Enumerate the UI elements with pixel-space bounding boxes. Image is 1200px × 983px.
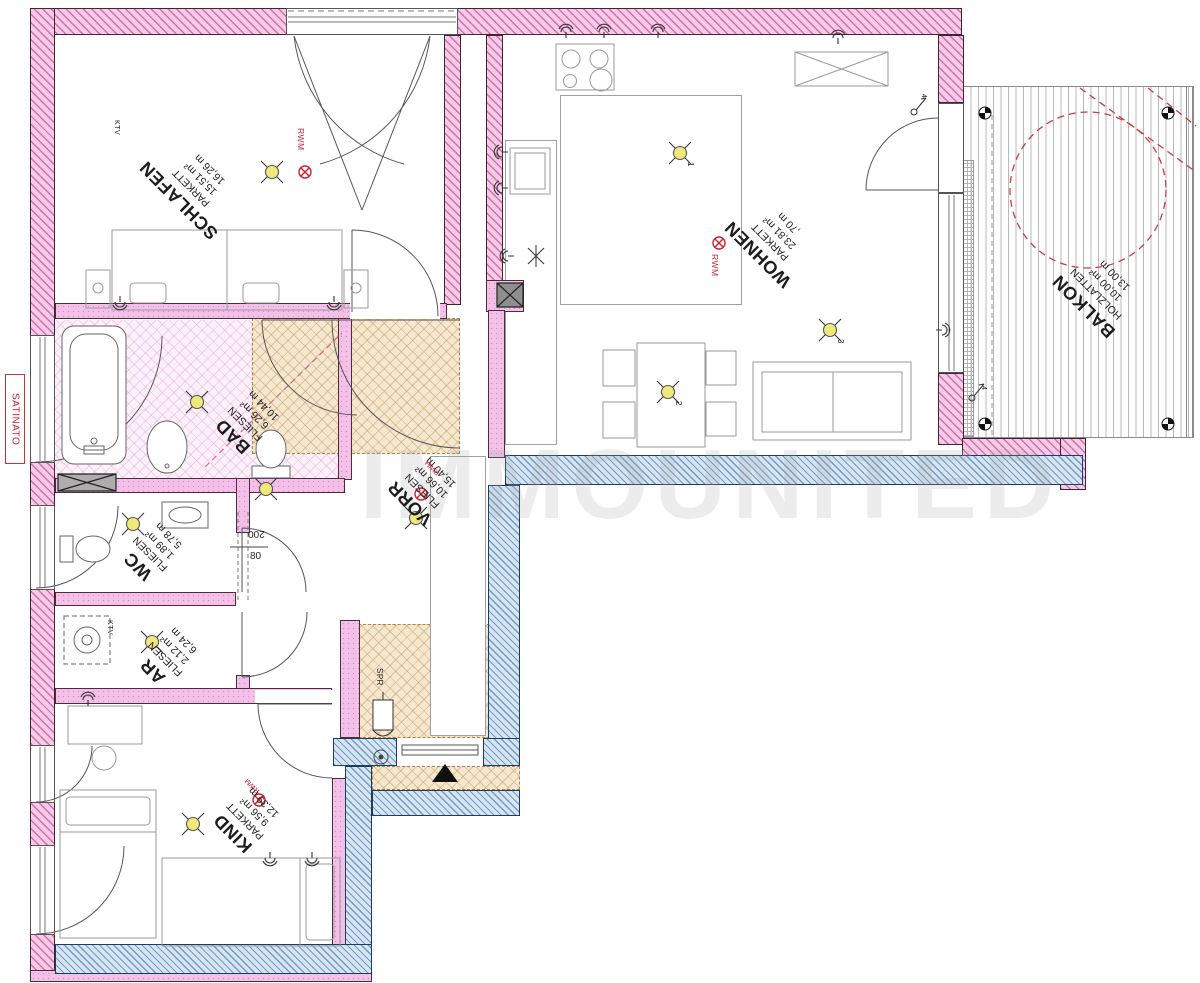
spr-label: SPR (375, 668, 384, 686)
rwm-label: RWM (296, 128, 306, 151)
light-number: 1 (686, 162, 695, 167)
socket-icon (597, 24, 611, 38)
stove-connection-icon (528, 245, 544, 267)
light-icon (669, 142, 691, 164)
dim-height-label: 200 (248, 528, 265, 539)
floor-plan: IMMOUNITED (0, 0, 1200, 983)
ktv-label: KTV (113, 120, 120, 135)
satinato-label-box: SATINATO (5, 374, 25, 464)
light-icon (819, 319, 841, 341)
dim-width-label: 80 (250, 551, 261, 562)
socket-icon (81, 692, 95, 706)
sofa (753, 362, 911, 440)
switch-icon (911, 98, 926, 115)
kind-chair (92, 746, 116, 770)
bad-basin (147, 421, 187, 473)
smoke-detector-icon (713, 237, 725, 249)
socket-icon (831, 30, 845, 44)
light-icon (261, 161, 283, 183)
kind-bed-1 (60, 790, 156, 938)
ktv-label: KTV (106, 620, 113, 635)
kitchen-sink (510, 148, 550, 194)
kind-bed-2 (162, 858, 340, 946)
light-number: 3 (836, 339, 845, 344)
sprinkler-device-icon (373, 692, 393, 736)
satinato-label: SATINATO (10, 393, 21, 445)
switch-number: 4 (980, 386, 987, 390)
stove (556, 44, 614, 90)
socket-icon (500, 249, 514, 263)
socket-icon (327, 296, 341, 310)
bathtub (62, 326, 126, 464)
socket-icon (113, 296, 127, 310)
socket-icon (651, 24, 665, 38)
light-icon (657, 381, 679, 403)
kind-desk (68, 706, 142, 744)
socket-icon (936, 323, 950, 337)
socket-icon (559, 24, 573, 38)
light-number: 2 (674, 401, 683, 406)
smoke-detector-icon (299, 166, 311, 178)
socket-icons (81, 24, 984, 866)
entrance-arrow-icon (432, 764, 458, 782)
dimension-lines (230, 512, 268, 600)
switch-number: 4 (920, 94, 927, 98)
socket-icon (494, 181, 508, 195)
smoke-detector-icons (253, 166, 725, 806)
rwm-label: RWM (710, 254, 720, 277)
socket-icon (494, 145, 508, 159)
